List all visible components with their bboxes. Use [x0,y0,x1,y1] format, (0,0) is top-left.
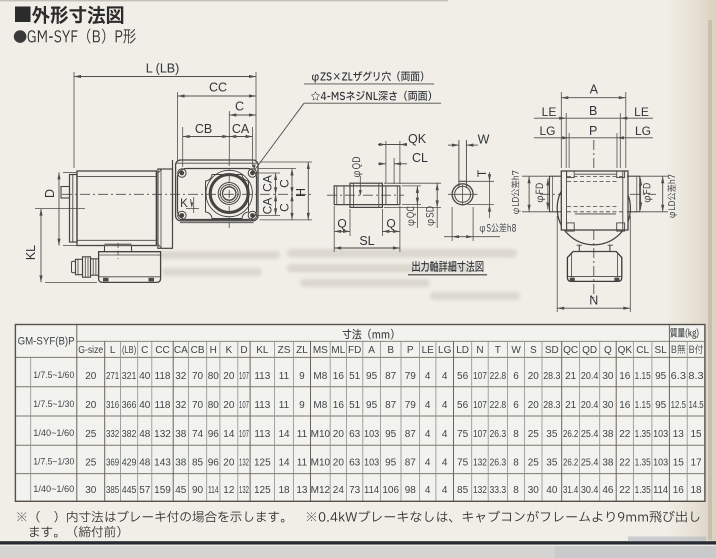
svg-text:24: 24 [333,485,345,496]
svg-text:B: B [387,345,394,356]
svg-text:103: 103 [364,458,379,469]
svg-text:13: 13 [296,485,308,496]
svg-text:16: 16 [333,371,345,382]
svg-text:A: A [368,345,375,356]
svg-text:56: 56 [457,371,469,382]
svg-text:143: 143 [154,458,171,469]
svg-text:4: 4 [442,458,448,469]
svg-text:SL: SL [359,234,374,248]
svg-text:385: 385 [106,485,120,496]
svg-text:13: 13 [673,429,685,440]
svg-text:ZS: ZS [278,345,291,356]
svg-text:85: 85 [457,485,469,496]
svg-text:271: 271 [106,371,120,382]
svg-text:SD: SD [545,345,559,356]
svg-text:382: 382 [122,429,137,440]
svg-text:4: 4 [442,371,448,382]
svg-text:90: 90 [192,485,204,496]
svg-text:22: 22 [619,429,631,440]
svg-text:56: 56 [457,400,469,411]
svg-text:17: 17 [690,458,702,469]
svg-text:38: 38 [602,458,614,469]
svg-text:C: C [278,179,292,188]
svg-text:M10: M10 [311,429,331,440]
svg-text:107: 107 [239,429,249,440]
svg-text:57: 57 [139,485,151,496]
svg-text:38: 38 [175,429,187,440]
svg-text:118: 118 [155,371,171,382]
svg-text:125: 125 [254,458,271,469]
svg-text:Q: Q [386,217,395,231]
svg-text:W: W [478,133,490,147]
svg-text:18: 18 [690,485,702,496]
svg-text:M10: M10 [311,458,331,469]
svg-text:1/40~1/60: 1/40~1/60 [33,428,74,439]
svg-text:Q: Q [604,345,612,356]
svg-text:26.2: 26.2 [563,429,579,440]
svg-text:8.3: 8.3 [688,371,704,382]
svg-text:40: 40 [139,371,151,382]
svg-text:26.2: 26.2 [563,458,579,469]
svg-text:132: 132 [239,485,249,496]
svg-text:W: W [511,345,521,356]
svg-text:16: 16 [619,371,631,382]
svg-text:4: 4 [425,400,431,411]
svg-text:QC: QC [563,345,578,356]
svg-text:28.3: 28.3 [543,400,561,411]
svg-text:4: 4 [442,429,448,440]
svg-text:LD: LD [456,345,469,356]
svg-text:95: 95 [655,400,667,411]
svg-text:L: L [110,345,116,356]
svg-text:132: 132 [239,458,249,469]
svg-text:8: 8 [513,429,519,440]
svg-text:80: 80 [208,400,220,411]
svg-text:22: 22 [619,458,631,469]
svg-text:20: 20 [223,400,235,411]
svg-text:32: 32 [175,371,187,382]
svg-text:73: 73 [349,485,361,496]
svg-text:M12: M12 [311,485,331,496]
svg-text:4: 4 [425,371,431,382]
svg-text:D: D [43,189,57,198]
svg-text:CB: CB [195,122,212,136]
svg-text:38: 38 [602,429,614,440]
svg-text:LE: LE [634,105,649,119]
svg-text:106: 106 [382,485,399,496]
svg-text:107: 107 [473,371,487,382]
svg-text:ML: ML [331,345,345,356]
svg-text:12: 12 [223,485,235,496]
svg-text:QK: QK [618,345,633,356]
svg-text:H: H [210,345,217,356]
svg-text:74: 74 [192,429,204,440]
svg-text:75: 75 [457,458,469,469]
svg-text:LE: LE [542,105,557,119]
svg-text:K: K [226,345,233,356]
svg-text:316: 316 [106,400,120,411]
svg-text:45: 45 [175,485,187,496]
svg-text:95: 95 [385,458,397,469]
svg-text:8: 8 [513,458,519,469]
svg-text:20: 20 [223,371,235,382]
svg-text:N: N [476,345,483,356]
svg-text:CL: CL [412,151,428,165]
svg-text:T: T [475,169,489,177]
svg-text:FD: FD [348,345,361,356]
svg-text:30: 30 [602,400,614,411]
svg-text:GM-SYF(B)P: GM-SYF(B)P [18,336,75,348]
svg-text:4: 4 [425,429,431,440]
svg-text:ZL: ZL [296,345,308,356]
svg-text:48: 48 [139,458,151,469]
svg-text:MS: MS [313,345,328,356]
svg-text:G-size: G-size [78,345,103,356]
svg-text:CA: CA [261,175,275,192]
svg-text:H: H [294,188,308,197]
svg-text:CC: CC [209,81,227,95]
svg-text:25.4: 25.4 [581,429,599,440]
svg-text:63: 63 [349,458,361,469]
svg-text:QD: QD [582,345,597,356]
svg-text:CB: CB [191,345,205,356]
svg-text:C: C [141,345,148,356]
svg-text:12.5: 12.5 [671,400,687,411]
svg-text:1.35: 1.35 [635,458,651,469]
svg-text:332: 332 [106,429,120,440]
svg-text:33.3: 33.3 [489,485,506,496]
svg-text:D: D [240,345,247,356]
svg-text:75: 75 [457,429,469,440]
svg-text:4: 4 [425,458,431,469]
svg-text:40: 40 [546,485,558,496]
svg-text:LG: LG [539,124,555,138]
svg-text:48: 48 [139,429,151,440]
svg-text:22.8: 22.8 [489,371,506,382]
svg-text:32: 32 [175,400,187,411]
svg-text:113: 113 [254,400,270,411]
svg-text:16: 16 [673,485,685,496]
svg-text:SL: SL [655,345,668,356]
svg-text:31.4: 31.4 [563,485,579,496]
svg-text:132: 132 [154,429,171,440]
svg-text:87: 87 [405,458,417,469]
svg-text:51: 51 [349,371,361,382]
svg-text:1.35: 1.35 [635,429,651,440]
svg-text:1/7.5~1/30: 1/7.5~1/30 [33,399,74,410]
svg-text:20: 20 [333,458,345,469]
svg-text:LE: LE [422,345,435,356]
svg-text:132: 132 [473,458,487,469]
svg-text:103: 103 [364,429,379,440]
svg-text:20: 20 [528,371,540,382]
svg-text:C: C [235,100,244,114]
svg-text:114: 114 [208,485,219,496]
svg-text:6.3: 6.3 [671,371,687,382]
svg-text:16: 16 [619,400,631,411]
svg-text:KL: KL [256,345,269,356]
svg-text:113: 113 [254,371,270,382]
svg-text:114: 114 [653,485,668,496]
svg-text:46: 46 [602,485,614,496]
svg-text:1.15: 1.15 [635,400,651,411]
svg-text:14.5: 14.5 [688,400,704,411]
svg-text:20: 20 [528,400,540,411]
svg-text:132: 132 [473,485,487,496]
svg-text:16: 16 [333,400,345,411]
svg-text:14: 14 [278,458,290,469]
svg-text:LG: LG [438,345,452,356]
svg-text:366: 366 [122,400,137,411]
svg-text:25.4: 25.4 [581,458,599,469]
svg-text:26.3: 26.3 [489,458,506,469]
svg-text:N: N [589,294,598,308]
svg-text:30: 30 [528,485,540,496]
svg-text:159: 159 [154,485,171,496]
svg-text:321: 321 [122,371,137,382]
svg-text:25: 25 [528,458,540,469]
svg-text:15: 15 [690,429,702,440]
svg-text:96: 96 [208,458,220,469]
svg-text:B: B [589,104,597,118]
svg-text:95: 95 [655,371,667,382]
svg-text:20: 20 [223,458,235,469]
svg-text:1/40~1/60: 1/40~1/60 [33,484,74,495]
svg-text:70: 70 [192,371,204,382]
svg-text:4: 4 [442,485,448,496]
svg-text:96: 96 [208,429,220,440]
svg-text:4: 4 [425,485,431,496]
svg-text:22: 22 [619,485,631,496]
svg-text:107: 107 [239,400,249,411]
svg-text:QK: QK [408,132,427,146]
svg-text:C: C [278,203,292,212]
svg-text:35: 35 [546,429,558,440]
svg-text:20: 20 [333,429,345,440]
svg-text:87: 87 [405,429,417,440]
svg-text:25: 25 [85,429,97,440]
svg-text:8: 8 [513,485,519,496]
svg-text:429: 429 [122,458,137,469]
svg-text:CL: CL [636,345,649,356]
svg-text:30: 30 [85,485,97,496]
svg-text:11: 11 [279,371,290,382]
svg-text:M8: M8 [313,400,327,411]
svg-text:25: 25 [85,458,97,469]
svg-text:38: 38 [175,458,187,469]
svg-text:445: 445 [122,485,137,496]
svg-text:P: P [589,124,597,138]
svg-text:CA: CA [261,198,275,215]
svg-text:87: 87 [385,400,397,411]
svg-text:30.4: 30.4 [581,485,599,496]
svg-text:25: 25 [528,429,540,440]
svg-text:1/7.5~1/30: 1/7.5~1/30 [33,457,74,468]
svg-text:20: 20 [85,371,97,382]
svg-text:T: T [495,345,501,356]
svg-text:11: 11 [279,400,290,411]
svg-text:CC: CC [155,345,169,356]
svg-text:9: 9 [299,400,305,411]
svg-text:M8: M8 [313,371,327,382]
svg-text:1/7.5~1/60: 1/7.5~1/60 [33,370,74,381]
svg-text:63: 63 [349,429,361,440]
svg-text:40: 40 [139,400,151,411]
svg-text:35: 35 [546,458,558,469]
svg-text:103: 103 [653,458,668,469]
svg-text:1.35: 1.35 [635,485,651,496]
svg-text:20: 20 [85,400,97,411]
svg-text:369: 369 [106,458,120,469]
svg-text:22.8: 22.8 [489,400,506,411]
svg-text:107: 107 [239,371,249,382]
svg-text:20.4: 20.4 [581,371,599,382]
svg-text:70: 70 [192,400,204,411]
svg-text:11: 11 [297,429,308,440]
svg-text:98: 98 [405,485,417,496]
svg-text:30: 30 [602,371,614,382]
svg-text:CA: CA [174,345,188,356]
svg-text:118: 118 [155,400,171,411]
svg-text:95: 95 [385,429,397,440]
svg-text:107: 107 [473,429,487,440]
svg-text:85: 85 [192,458,204,469]
svg-text:18: 18 [278,485,290,496]
svg-text:(LB): (LB) [122,345,136,356]
svg-text:95: 95 [366,400,378,411]
svg-text:CA: CA [232,122,250,136]
svg-text:51: 51 [349,400,361,411]
svg-text:P: P [407,345,414,356]
svg-text:A: A [590,83,599,97]
svg-text:6: 6 [513,400,519,411]
svg-text:107: 107 [473,400,487,411]
svg-text:26.3: 26.3 [489,429,506,440]
svg-text:79: 79 [405,400,417,411]
svg-text:113: 113 [254,429,270,440]
svg-text:103: 103 [653,429,668,440]
svg-text:21: 21 [565,371,577,382]
svg-text:11: 11 [297,458,308,469]
svg-text:79: 79 [405,371,417,382]
svg-text:4: 4 [442,400,448,411]
svg-text:1.15: 1.15 [635,371,651,382]
svg-text:125: 125 [254,485,271,496]
svg-text:14: 14 [223,429,235,440]
svg-text:95: 95 [366,371,378,382]
svg-text:28.3: 28.3 [543,371,561,382]
svg-text:80: 80 [208,371,220,382]
svg-text:87: 87 [385,371,397,382]
svg-text:15: 15 [673,458,685,469]
svg-text:114: 114 [364,485,380,496]
svg-text:14: 14 [278,429,290,440]
svg-text:Q: Q [337,217,346,231]
svg-text:S: S [530,345,537,356]
svg-text:LG: LG [635,124,651,138]
svg-text:L (LB): L (LB) [146,62,180,76]
svg-text:KL: KL [24,245,38,260]
svg-text:6: 6 [513,371,519,382]
svg-text:9: 9 [299,371,305,382]
svg-text:20.4: 20.4 [581,400,599,411]
svg-text:21: 21 [565,400,577,411]
